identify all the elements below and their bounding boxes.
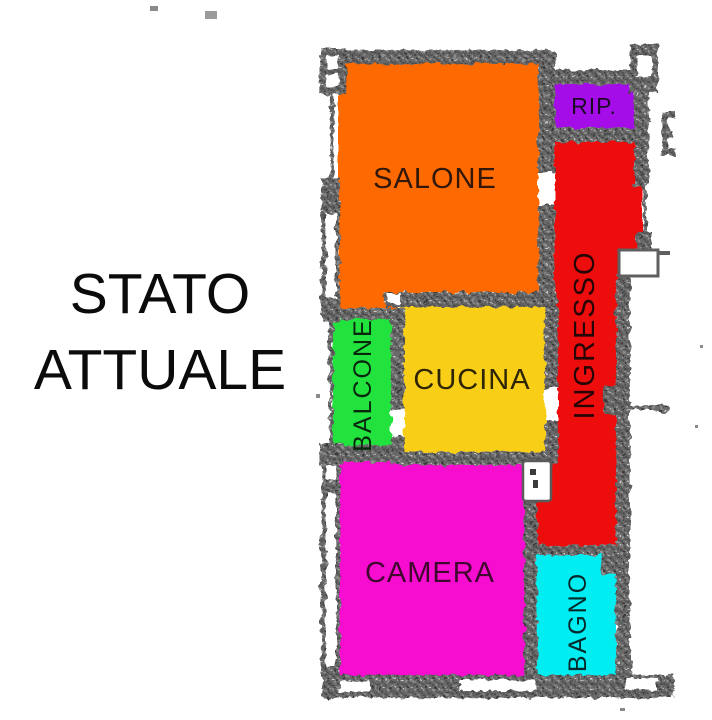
scan-speck [316,394,320,398]
wall-segment [384,292,558,307]
wall-segment [344,50,556,64]
wall-bracket-detail [662,149,675,156]
window-slot [326,56,339,69]
floorplan-page: STATO ATTUALE [0,0,712,720]
scan-speck [620,708,625,711]
entry-door [619,250,658,276]
wall-segment [643,186,647,234]
wall-bracket-detail [662,131,672,137]
wall-bracket-detail [662,112,675,119]
window-slot [326,74,339,87]
scan-speck [205,11,217,19]
page-title: STATO ATTUALE [8,256,312,408]
wall-segment [332,308,394,319]
wall-segment [616,274,630,678]
door-gap-balcone-cucina [391,410,404,436]
entry-door-tick [657,251,670,255]
window-slot [626,679,657,690]
door-swing-line [628,406,664,410]
wall-segment [330,94,334,180]
title-line-2: ATTUALE [8,332,312,408]
camera-door-hinge [530,469,536,475]
wall-segment [604,386,618,414]
room-label-ingresso: INGRESSO [569,250,601,419]
room-label-salone: SALONE [373,163,497,195]
wall-segment [321,178,340,214]
window-slot [326,214,336,298]
scan-speck [150,6,158,11]
scan-speck [700,345,703,348]
door-swing-knob [660,404,669,413]
room-label-balcone: BALCONE [349,318,377,451]
window-slot [637,55,652,77]
door-gap-salone-cucina [387,293,400,303]
room-label-rip: RIP. [571,93,617,119]
room-label-camera: CAMERA [365,557,495,589]
window-slot [340,681,370,692]
window-slot [460,680,536,691]
door-gap-cucina-ingresso [545,388,558,421]
room-label-cucina: CUCINA [413,364,530,396]
window-slot [326,466,336,480]
wall-segment [320,48,346,94]
wall-segment [602,548,625,574]
wall-segment [546,128,646,142]
window-slot [326,494,336,666]
camera-door-hinge [533,480,538,488]
title-line-1: STATO [8,256,312,332]
scan-speck [695,425,698,428]
balcony-railing [329,320,333,446]
room-label-bagno: BAGNO [564,572,592,672]
door-gap-salone-ingresso [538,172,555,205]
wall-segment [545,296,558,462]
